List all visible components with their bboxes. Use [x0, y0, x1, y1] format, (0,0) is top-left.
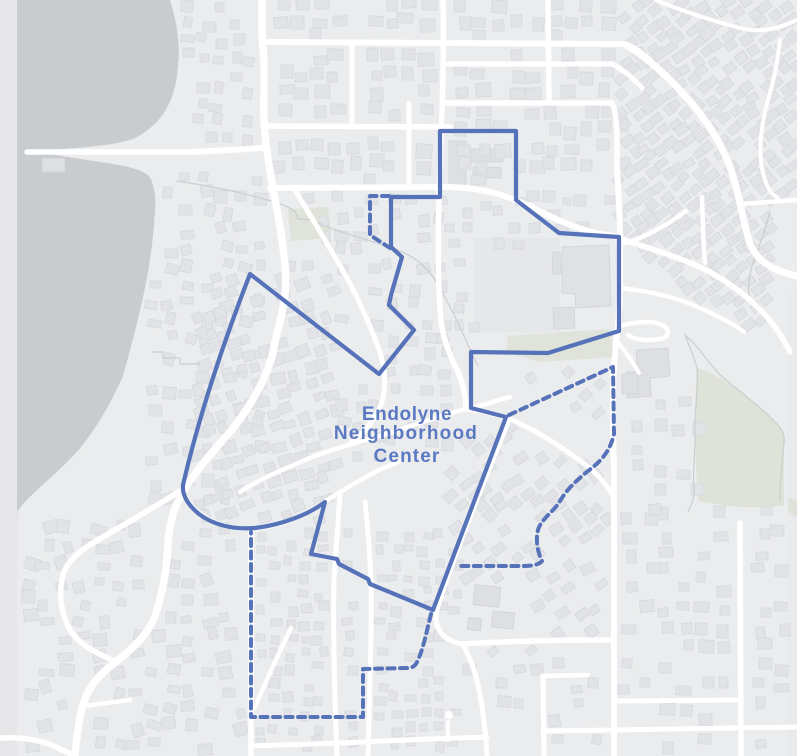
svg-text:Neighborhood: Neighborhood [334, 423, 478, 444]
svg-text:Center: Center [374, 446, 441, 467]
svg-text:Endolyne: Endolyne [362, 404, 452, 425]
